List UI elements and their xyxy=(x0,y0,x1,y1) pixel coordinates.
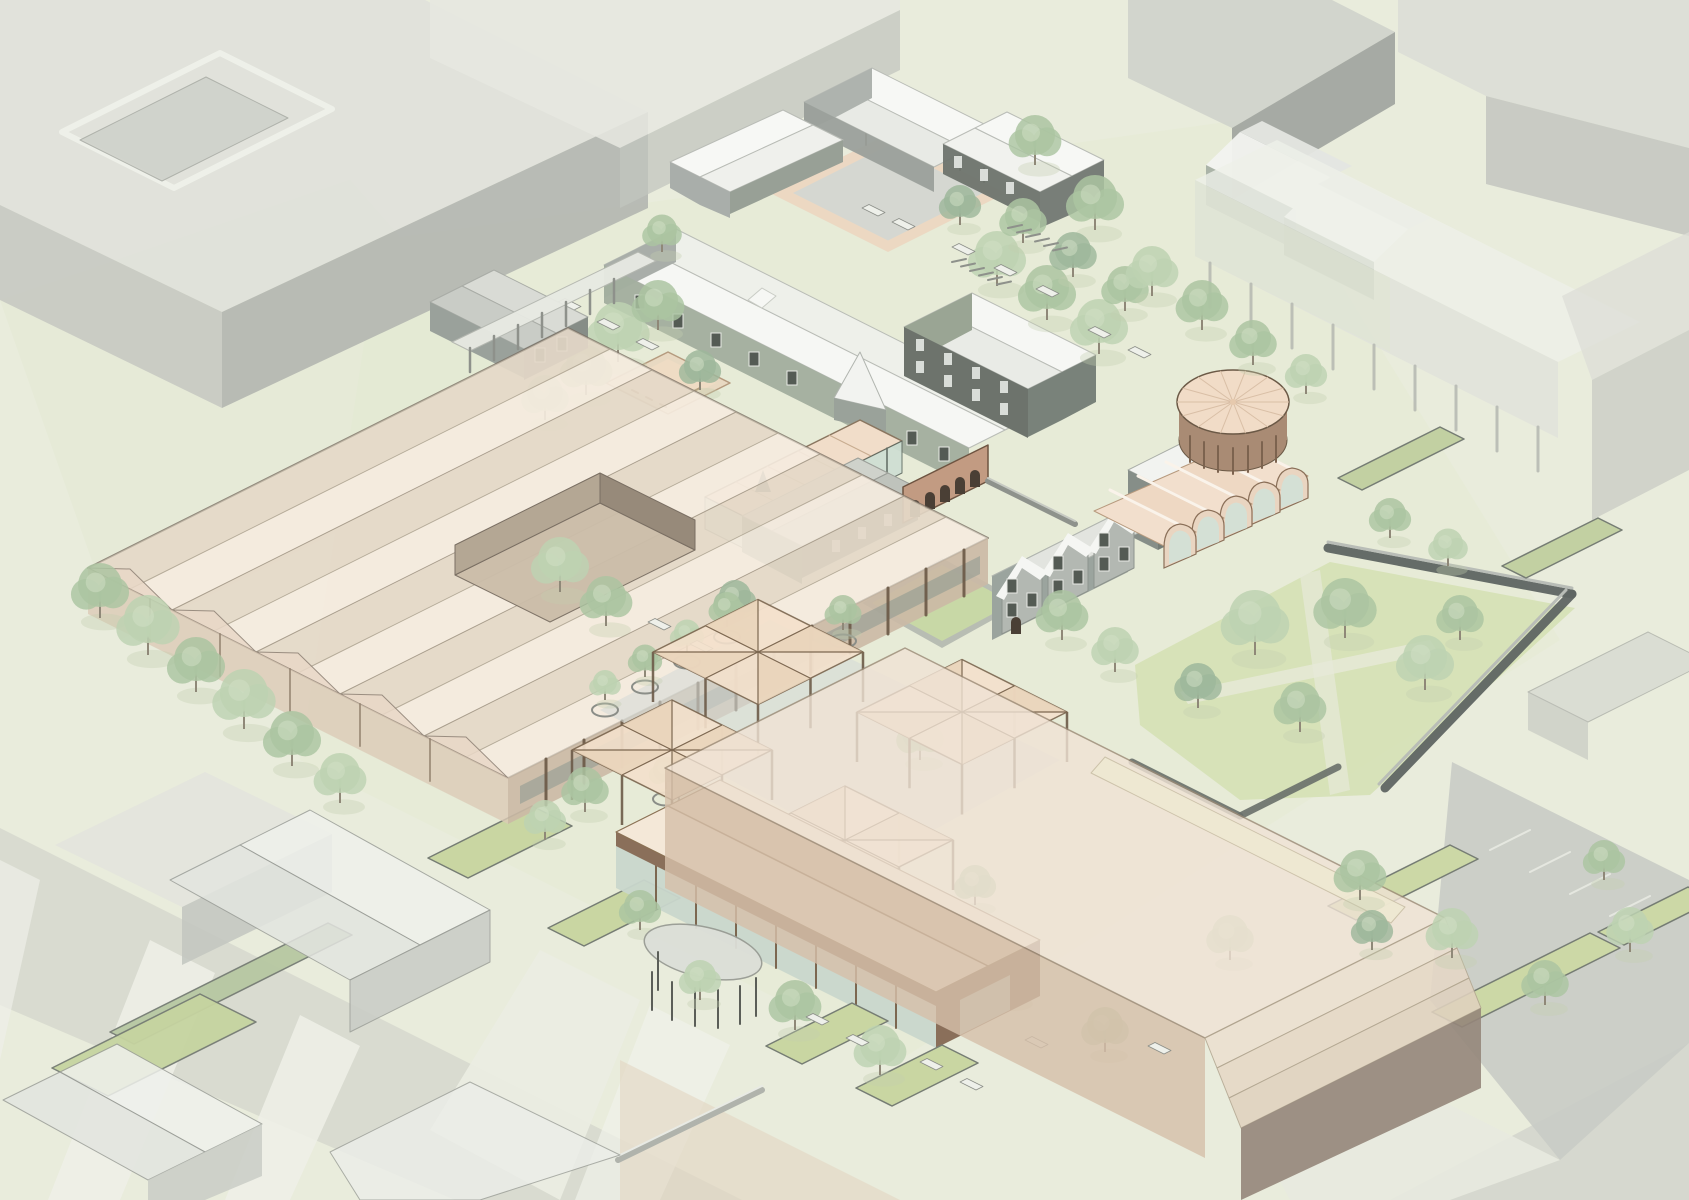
east-wing-window xyxy=(1006,182,1014,194)
terrace-window xyxy=(916,339,924,351)
tree-highlight xyxy=(652,221,666,235)
tree-shadow xyxy=(589,622,631,637)
tree-highlight xyxy=(182,646,202,666)
tree-highlight xyxy=(86,572,106,592)
tree-shadow xyxy=(778,1026,820,1041)
tree-shadow xyxy=(1445,637,1483,651)
tree-highlight xyxy=(1287,691,1305,709)
tree-shadow xyxy=(1436,564,1468,575)
tree-highlight xyxy=(278,720,298,740)
manor-window xyxy=(1099,533,1109,547)
tree-shadow xyxy=(1530,1002,1568,1016)
tree-shadow xyxy=(1283,728,1325,743)
south-wing-window xyxy=(749,352,759,366)
tree-highlight xyxy=(690,357,704,371)
tree-highlight xyxy=(983,240,1003,260)
tree-shadow xyxy=(1058,274,1096,288)
masterplan-canvas xyxy=(0,0,1689,1200)
tree-highlight xyxy=(1347,859,1365,877)
tree-shadow xyxy=(1591,878,1625,890)
tree-highlight xyxy=(1438,535,1452,549)
tree-shadow xyxy=(1100,669,1138,683)
tree-shadow xyxy=(947,223,981,235)
manor-window xyxy=(1073,570,1083,584)
terrace-window xyxy=(1000,403,1008,415)
tree-highlight xyxy=(1186,671,1202,687)
tree-shadow xyxy=(687,998,721,1010)
manor-window xyxy=(1099,557,1109,571)
folly-arch xyxy=(955,477,965,494)
tree-shadow xyxy=(1359,948,1393,960)
tree-shadow xyxy=(1232,649,1287,669)
tree-highlight xyxy=(645,289,663,307)
tree-shadow xyxy=(532,838,566,850)
manor-door xyxy=(1011,617,1021,634)
tree-highlight xyxy=(1439,917,1457,935)
tree-highlight xyxy=(1085,308,1105,328)
tree-highlight xyxy=(1594,847,1608,861)
terrace-window xyxy=(1000,381,1008,393)
tree-highlight xyxy=(630,897,644,911)
manor-window xyxy=(1027,593,1037,607)
tree-shadow xyxy=(1406,686,1452,703)
tree-shadow xyxy=(1183,705,1221,719)
tree-shadow xyxy=(1018,161,1060,176)
manor-window xyxy=(1053,556,1063,570)
manor-window xyxy=(1007,603,1017,617)
terrace-window xyxy=(944,375,952,387)
tree-highlight xyxy=(546,546,566,566)
tree-shadow xyxy=(1615,949,1653,963)
south-wing-window xyxy=(787,371,797,385)
tree-highlight xyxy=(1533,968,1549,984)
terrace-window xyxy=(916,361,924,373)
tree-highlight xyxy=(867,1034,885,1052)
tree-highlight xyxy=(950,192,964,206)
tree-highlight xyxy=(132,605,154,627)
tree-shadow xyxy=(1110,308,1148,322)
tree-highlight xyxy=(535,807,549,821)
tree-shadow xyxy=(1435,954,1477,969)
east-wing-window xyxy=(980,169,988,181)
tree-shadow xyxy=(570,809,608,823)
tree-highlight xyxy=(1103,635,1119,651)
tree-shadow xyxy=(1238,362,1276,376)
terrace-window xyxy=(944,353,952,365)
tree-highlight xyxy=(1296,361,1310,375)
tree-highlight xyxy=(593,585,611,603)
terrace-window xyxy=(972,367,980,379)
tree-highlight xyxy=(1329,588,1351,610)
terrace-window xyxy=(972,389,980,401)
tree-shadow xyxy=(1343,896,1385,911)
tree-shadow xyxy=(1080,350,1126,367)
tree-highlight xyxy=(1011,206,1027,222)
tree-shadow xyxy=(1135,292,1177,307)
folly-arch xyxy=(970,470,980,487)
east-wing-window xyxy=(954,156,962,168)
tree-highlight xyxy=(1189,289,1207,307)
tree-highlight xyxy=(573,775,589,791)
tree-highlight xyxy=(834,601,847,614)
tree-shadow xyxy=(635,676,662,686)
south-wing-window xyxy=(711,333,721,347)
tree-shadow xyxy=(1028,316,1074,333)
tree-highlight xyxy=(690,967,704,981)
tree-highlight xyxy=(1618,915,1634,931)
tree-highlight xyxy=(327,762,345,780)
tree-highlight xyxy=(718,598,731,611)
tree-highlight xyxy=(1241,328,1257,344)
tree-shadow xyxy=(1045,636,1087,651)
tree-shadow xyxy=(1185,326,1227,341)
tree-highlight xyxy=(1139,255,1157,273)
south-wing-window xyxy=(907,431,917,445)
tree-highlight xyxy=(637,650,649,662)
round-pavilion-cap xyxy=(1230,399,1236,405)
tree-shadow xyxy=(1293,392,1327,404)
tree-highlight xyxy=(1049,599,1067,617)
tree-shadow xyxy=(1324,633,1374,651)
tree-shadow xyxy=(1008,240,1046,254)
tree-highlight xyxy=(1448,603,1464,619)
tree-highlight xyxy=(228,679,250,701)
manor-window xyxy=(1007,579,1017,593)
tree-highlight xyxy=(1022,124,1040,142)
tree-highlight xyxy=(1411,644,1431,664)
tree-shadow xyxy=(323,799,365,814)
tree-shadow xyxy=(596,699,621,708)
south-wing-window xyxy=(939,447,949,461)
tree-highlight xyxy=(1238,601,1261,624)
tree-highlight xyxy=(1380,505,1394,519)
tree-shadow xyxy=(273,762,319,779)
tree-shadow xyxy=(1377,536,1411,548)
tree-highlight xyxy=(1081,184,1101,204)
folly-arch xyxy=(940,485,950,502)
masterplan-illustration xyxy=(0,0,1689,1200)
tree-highlight xyxy=(597,675,608,686)
tree-shadow xyxy=(641,326,683,341)
tree-shadow xyxy=(863,1071,905,1086)
manor-window xyxy=(1119,547,1129,561)
tree-highlight xyxy=(782,989,800,1007)
tree-highlight xyxy=(1362,917,1376,931)
tree-shadow xyxy=(832,629,861,640)
